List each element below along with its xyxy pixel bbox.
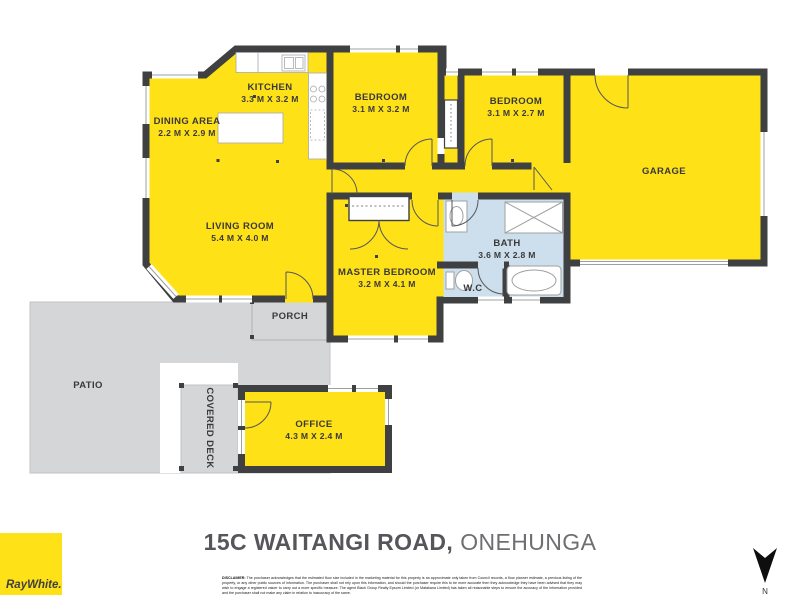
floorplan-drawing: KITCHEN 3.3 M X 3.2 M DINING AREA 2.2 M … <box>0 0 800 600</box>
room-label-master: MASTER BEDROOM <box>338 267 436 278</box>
room-label-bedroom2: BEDROOM <box>490 96 542 107</box>
raywhite-wordmark: RayWhite. <box>6 579 62 591</box>
north-label: N <box>762 587 768 596</box>
room-label-kitchen: KITCHEN <box>247 82 292 93</box>
room-dims-living: 5.4 M X 4.0 M <box>211 233 268 243</box>
kitchen-island <box>218 113 283 143</box>
wardrobe <box>349 197 409 221</box>
room-label-bath: BATH <box>493 238 520 249</box>
raywhite-logo: RayWhite. <box>0 533 62 595</box>
room-dims-bedroom2: 3.1 M X 2.7 M <box>487 108 544 118</box>
room-dims-bedroom1: 3.1 M X 3.2 M <box>352 104 409 114</box>
room-label-garage: GARAGE <box>642 166 686 177</box>
room-label-living: LIVING ROOM <box>206 221 274 232</box>
address-street: 15C WAITANGI ROAD, <box>204 529 454 555</box>
path-cutout-v <box>160 363 181 473</box>
room-dims-dining: 2.2 M X 2.9 M <box>158 128 215 138</box>
room-label-wc: W.C <box>463 283 482 294</box>
room-label-porch: PORCH <box>272 311 308 322</box>
floorplan-page: KITCHEN 3.3 M X 3.2 M DINING AREA 2.2 M … <box>0 0 800 600</box>
room-dims-bath: 3.6 M X 2.8 M <box>478 250 535 260</box>
disclaimer-text: DISCLAIMER: The purchaser acknowledges t… <box>222 576 582 597</box>
room-label-patio: PATIO <box>73 380 103 391</box>
room-dims-kitchen: 3.3 M X 3.2 M <box>241 94 298 104</box>
disclaimer-label: DISCLAIMER: <box>222 576 246 580</box>
toilet-icon <box>446 272 454 289</box>
room-dims-master: 3.2 M X 4.1 M <box>358 279 415 289</box>
room-label-covered-deck: COVERED DECK <box>204 387 215 468</box>
garage-door <box>580 260 728 267</box>
room-dims-office: 4.3 M X 2.4 M <box>285 431 342 441</box>
address-title: 15C WAITANGI ROAD,ONEHUNGA <box>0 529 800 556</box>
vanity-icon <box>446 201 467 232</box>
address-suburb: ONEHUNGA <box>460 529 596 555</box>
room-label-bedroom1: BEDROOM <box>355 92 407 103</box>
room-label-dining: DINING AREA <box>154 116 221 127</box>
room-label-office: OFFICE <box>295 419 332 430</box>
